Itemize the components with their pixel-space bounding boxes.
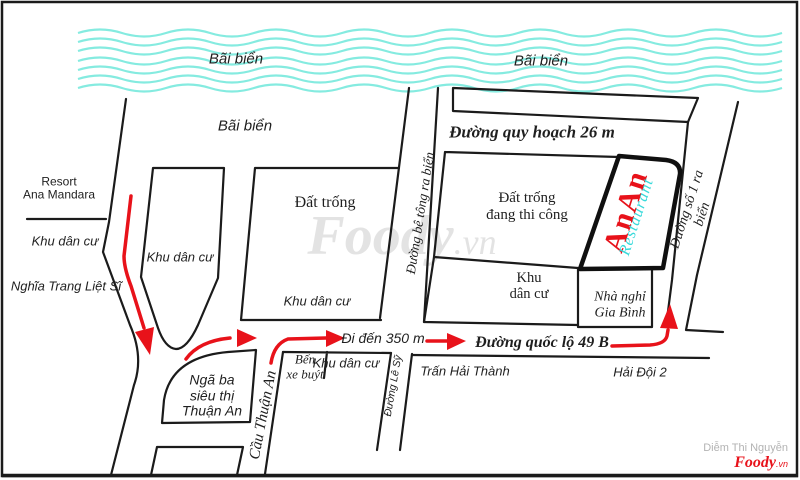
beach-label-mid: Bãi biển (218, 119, 272, 136)
area-label-khu-dan-cu-island: Khu dân cư (147, 251, 214, 266)
area-label-nha-nghi: Nhà nghỉ Gia Bình (594, 289, 646, 320)
sea-waves-icon (78, 30, 782, 92)
area-label-dat-trong-thi-cong: Đất trống đang thi công (486, 190, 568, 224)
area-label-dat-trong: Đất trống (295, 194, 356, 212)
area-label-khu-dan-cu-south: Khu dân cư (313, 357, 380, 372)
credit-brand-suffix: .vn (776, 459, 788, 469)
area-label-khu-dan-cu-west: Khu dân cư (32, 235, 99, 250)
area-label-nga-ba: Ngã ba siêu thị Thuận An (182, 372, 242, 419)
beach-label-east: Bãi biển (514, 54, 568, 71)
credit-brand: Foody (734, 454, 776, 471)
area-label-khu-dan-cu-east: Khu dân cư (510, 270, 549, 302)
credit: Diễm Thi Nguyễn Foody.vn (703, 442, 788, 472)
directions-map: Foody.vn (0, 0, 800, 480)
area-label-khu-dan-cu-center: Khu dân cư (284, 295, 351, 310)
area-label-tran-hai-thanh: Trấn Hải Thành (420, 365, 509, 380)
area-label-nghia-trang: Nghĩa Trang Liệt Sĩ (11, 280, 121, 295)
credit-author: Diễm Thi Nguyễn (703, 442, 788, 454)
route-distance-label: Đi đến 350 m (341, 331, 424, 347)
area-label-resort: Resort Ana Mandara (23, 176, 95, 203)
road-label-quy-hoach: Đường quy hoạch 26 m (449, 122, 615, 141)
beach-label-west: Bãi biển (209, 52, 263, 69)
area-label-hai-doi-2: Hải Đội 2 (613, 366, 666, 381)
road-label-quoc-lo: Đường quốc lộ 49 B (475, 334, 609, 352)
roads-and-blocks (27, 88, 738, 475)
